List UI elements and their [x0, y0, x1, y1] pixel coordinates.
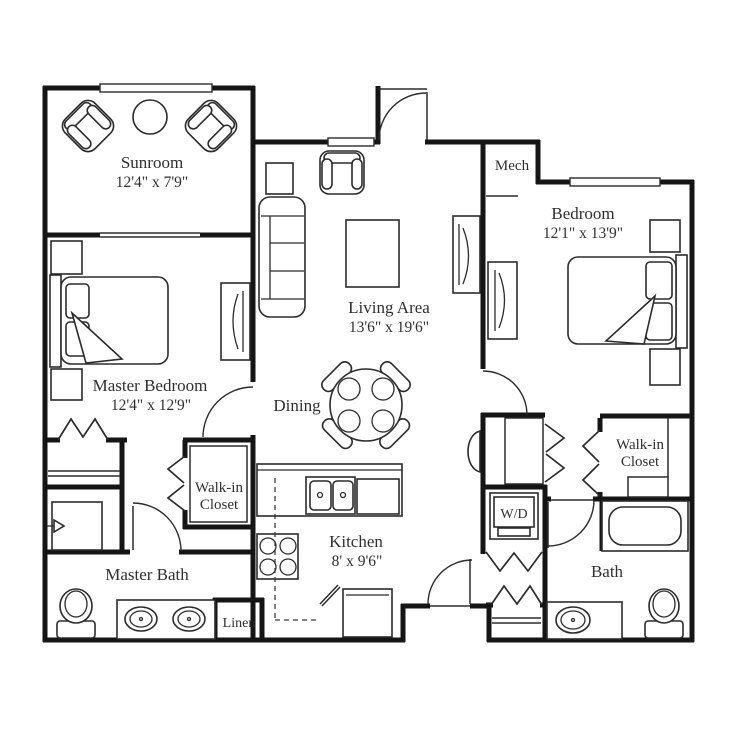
nightstand — [650, 349, 680, 385]
master-dresser — [221, 283, 250, 360]
refrigerator — [343, 589, 392, 637]
bedroom-bed — [568, 255, 687, 348]
closet-shelf — [505, 418, 543, 484]
linen-label: Linen — [223, 616, 256, 631]
sunroom-label: Sunroom — [121, 153, 183, 172]
door-swing — [203, 387, 253, 437]
door-swing — [483, 371, 527, 415]
bifold-door — [583, 430, 600, 496]
master-bedroom-dims: 12'4" x 12'9" — [111, 397, 191, 414]
kitchen-label: Kitchen — [329, 532, 383, 551]
headboard — [676, 255, 687, 348]
nightstand — [51, 241, 82, 274]
bedroom-dims: 12'1" x 13'9" — [543, 225, 623, 242]
coffee-table — [346, 220, 399, 287]
kitchen-dims: 8' x 9'6" — [332, 553, 383, 570]
range — [257, 534, 298, 579]
bifold-door — [168, 456, 185, 511]
armchair — [320, 151, 364, 194]
living-area-dims: 13'6" x 19'6" — [349, 319, 429, 336]
sunroom-round-table — [133, 100, 167, 134]
nightstand — [51, 369, 82, 400]
pantry-door-leaf — [320, 585, 340, 606]
bifold-door — [58, 419, 108, 440]
sink-basin — [310, 481, 331, 510]
bedroom-closet-label-2: Closet — [621, 454, 660, 470]
master-bed — [50, 275, 168, 367]
side-table — [266, 163, 293, 194]
sunroom-dims: 12'4" x 7'9" — [116, 174, 189, 191]
master-bedroom-label: Master Bedroom — [93, 376, 208, 395]
bifold-door — [545, 424, 564, 482]
bath-label: Bath — [591, 562, 624, 581]
window — [328, 138, 374, 146]
bedroom-dresser — [488, 262, 517, 339]
bifold-door — [486, 552, 542, 571]
dining-set — [319, 359, 412, 451]
bathtub-basin — [609, 507, 681, 545]
cased-opening — [100, 233, 200, 237]
master-closet-label-2: Closet — [200, 497, 239, 513]
pillow — [66, 284, 89, 318]
door-swing — [133, 503, 181, 551]
sunroom-armchair-right — [181, 96, 240, 155]
tv-console — [453, 216, 480, 293]
nightstand — [650, 220, 680, 252]
door-swing — [428, 560, 472, 604]
sunroom-armchair-left — [58, 96, 117, 155]
living-area-label: Living Area — [348, 298, 430, 317]
door-swing — [379, 93, 426, 140]
window — [570, 178, 660, 186]
door-swing — [548, 500, 594, 546]
closet-shelf — [48, 471, 120, 476]
console-table — [468, 431, 480, 472]
dining-table — [330, 369, 402, 441]
bedroom-closet-label-1: Walk-in — [616, 437, 664, 453]
master-bath-label: Master Bath — [105, 565, 189, 584]
mech-label: Mech — [495, 158, 530, 174]
pillow — [646, 262, 672, 299]
floor-plan-page: W/D Sunroom 12'4" x 7'9" Master Bedroom … — [0, 0, 750, 750]
bifold-door — [491, 586, 542, 605]
washer-dryer: W/D — [490, 493, 538, 539]
dishwasher — [357, 479, 399, 514]
window — [100, 84, 212, 92]
dining-label: Dining — [273, 396, 321, 415]
closet-shelf — [492, 618, 541, 623]
closet-shelf — [628, 477, 668, 497]
sofa — [259, 197, 305, 317]
sink-basin — [333, 481, 353, 510]
washer-dryer-label: W/D — [500, 507, 527, 522]
floor-plan-drawing: W/D Sunroom 12'4" x 7'9" Master Bedroom … — [0, 0, 750, 750]
headboard — [50, 275, 61, 367]
bedroom-label: Bedroom — [551, 204, 614, 223]
master-closet-label-1: Walk-in — [195, 480, 243, 496]
